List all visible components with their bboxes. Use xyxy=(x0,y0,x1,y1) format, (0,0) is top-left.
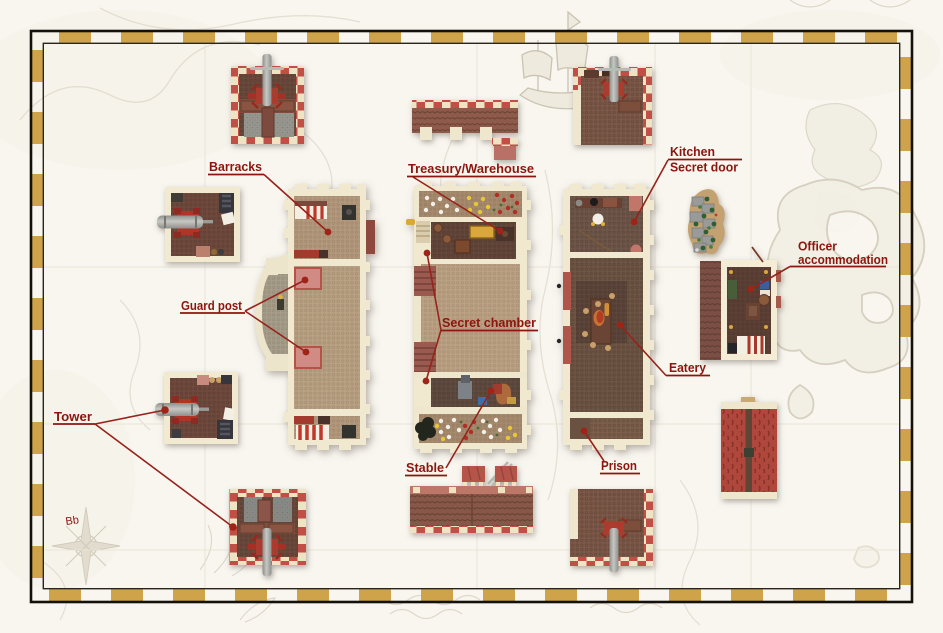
svg-text:Tower: Tower xyxy=(54,409,92,424)
svg-text:Kitchen: Kitchen xyxy=(670,144,715,159)
svg-text:Secret chamber: Secret chamber xyxy=(442,315,536,330)
svg-text:Secret door: Secret door xyxy=(670,160,738,175)
svg-text:Barracks: Barracks xyxy=(209,159,262,174)
svg-text:Bb: Bb xyxy=(65,514,80,528)
svg-text:Treasury/Warehouse: Treasury/Warehouse xyxy=(408,161,534,176)
svg-text:Stable: Stable xyxy=(406,460,444,475)
svg-text:Prison: Prison xyxy=(601,458,637,473)
svg-text:Guard post: Guard post xyxy=(181,298,243,313)
svg-text:accommodation: accommodation xyxy=(798,252,888,267)
svg-text:Eatery: Eatery xyxy=(669,360,707,375)
